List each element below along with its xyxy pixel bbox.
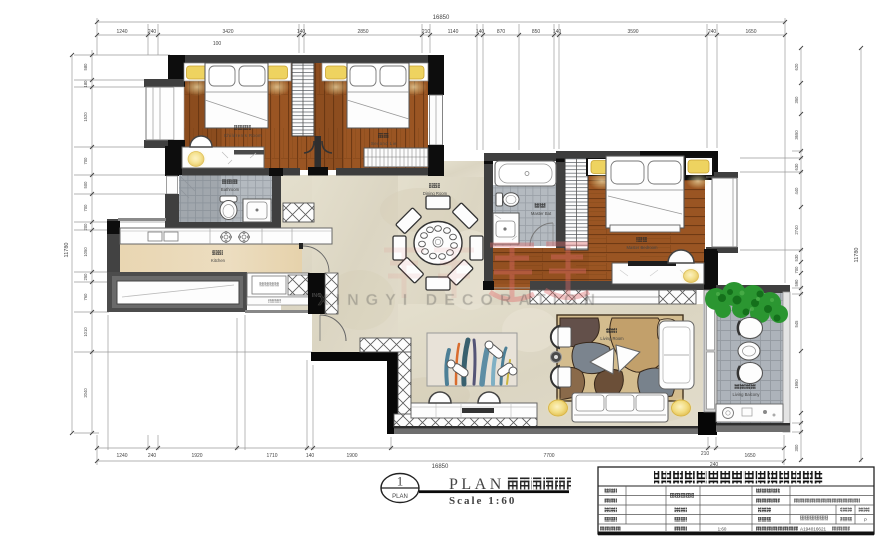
svg-text:630: 630 [794,163,799,171]
svg-text:Living Balcony: Living Balcony [732,392,760,397]
svg-text:180: 180 [83,80,88,88]
svg-text:2850: 2850 [357,29,368,35]
svg-text:Scale 1:60: Scale 1:60 [449,495,516,507]
svg-text:16850: 16850 [433,15,450,21]
svg-text:1900: 1900 [346,453,357,459]
svg-text:Dining Room: Dining Room [423,191,448,196]
svg-text:850: 850 [532,29,541,35]
svg-text:1650: 1650 [745,29,756,35]
svg-text:1240: 1240 [116,453,127,459]
svg-text:11780: 11780 [64,243,70,258]
svg-text:870: 870 [497,29,506,35]
svg-text:440: 440 [794,187,799,195]
svg-text:1950: 1950 [794,379,799,389]
svg-text:1010: 1010 [83,327,88,337]
svg-text:200: 200 [83,223,88,231]
svg-text:2740: 2740 [794,225,799,235]
svg-text:3590: 3590 [627,29,638,35]
svg-text:1140: 1140 [448,29,459,35]
svg-text:140: 140 [297,29,306,35]
svg-text:1240: 1240 [116,29,127,35]
svg-text:530: 530 [794,254,799,262]
svg-text:3650: 3650 [794,130,799,140]
svg-text:1050: 1050 [83,247,88,257]
svg-text:300: 300 [794,444,799,452]
svg-text:Bathroom: Bathroom [221,187,240,192]
svg-text:16850: 16850 [432,464,449,470]
svg-text:Second Lie: Second Lie [371,141,397,146]
svg-text:140: 140 [306,453,315,459]
svg-text:PLAN: PLAN [449,476,505,493]
svg-text:700: 700 [83,204,88,212]
svg-text:100: 100 [213,41,222,47]
svg-text:1520: 1520 [83,112,88,122]
svg-text:620: 620 [794,63,799,71]
svg-text:Master Bat: Master Bat [531,211,552,216]
svg-text:1: 1 [397,474,404,489]
svg-text:210: 210 [701,451,710,457]
svg-text:210: 210 [422,29,431,35]
svg-text:250: 250 [83,273,88,281]
svg-text:700: 700 [83,157,88,165]
svg-text:140: 140 [476,29,485,35]
svg-text:500: 500 [83,181,88,189]
svg-text:Living Room: Living Room [600,336,624,341]
svg-text:240: 240 [148,29,157,35]
svg-text:760: 760 [83,293,88,301]
svg-text:140: 140 [553,29,562,35]
svg-text:350: 350 [794,96,799,104]
svg-text:240: 240 [148,453,157,459]
svg-text:A194016621: A194016621 [800,527,827,532]
svg-text:P: P [864,518,867,523]
svg-text:700: 700 [794,266,799,274]
svg-text:3420: 3420 [222,29,233,35]
svg-text:545: 545 [794,320,799,328]
svg-text:1710: 1710 [266,453,277,459]
svg-text:240: 240 [708,29,717,35]
svg-text:11780: 11780 [854,248,860,263]
svg-text:Master Bedroom: Master Bedroom [627,245,658,250]
svg-text:Kitchen: Kitchen [211,258,226,263]
svg-text:Children's Room: Children's Room [224,133,262,138]
svg-text:580: 580 [83,63,88,71]
svg-text:1650: 1650 [744,453,755,459]
svg-text:590: 590 [794,279,799,287]
svg-text:PLAN: PLAN [392,494,408,500]
svg-text:7700: 7700 [543,453,554,459]
svg-text:1920: 1920 [191,453,202,459]
svg-text:XINGYI DECORATION: XINGYI DECORATION [318,292,602,309]
svg-text:1:60: 1:60 [718,527,727,532]
svg-text:2040: 2040 [83,388,88,398]
